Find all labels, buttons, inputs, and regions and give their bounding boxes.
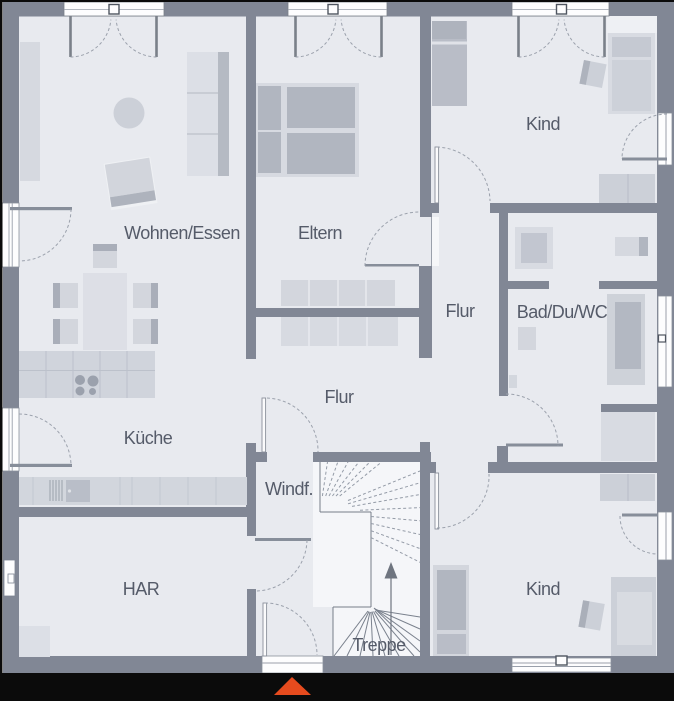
svg-text:HAR: HAR — [123, 579, 160, 599]
svg-text:Windf.: Windf. — [265, 479, 313, 499]
svg-text:Kind: Kind — [526, 579, 560, 599]
svg-text:Kind: Kind — [526, 114, 560, 134]
svg-text:Küche: Küche — [124, 428, 173, 448]
svg-text:Flur: Flur — [446, 301, 476, 321]
svg-text:Bad/Du/WC: Bad/Du/WC — [517, 302, 608, 322]
svg-text:Treppe: Treppe — [352, 635, 406, 655]
svg-text:Wohnen/Essen: Wohnen/Essen — [124, 223, 240, 243]
svg-text:Flur: Flur — [325, 387, 355, 407]
svg-text:Eltern: Eltern — [298, 223, 342, 243]
